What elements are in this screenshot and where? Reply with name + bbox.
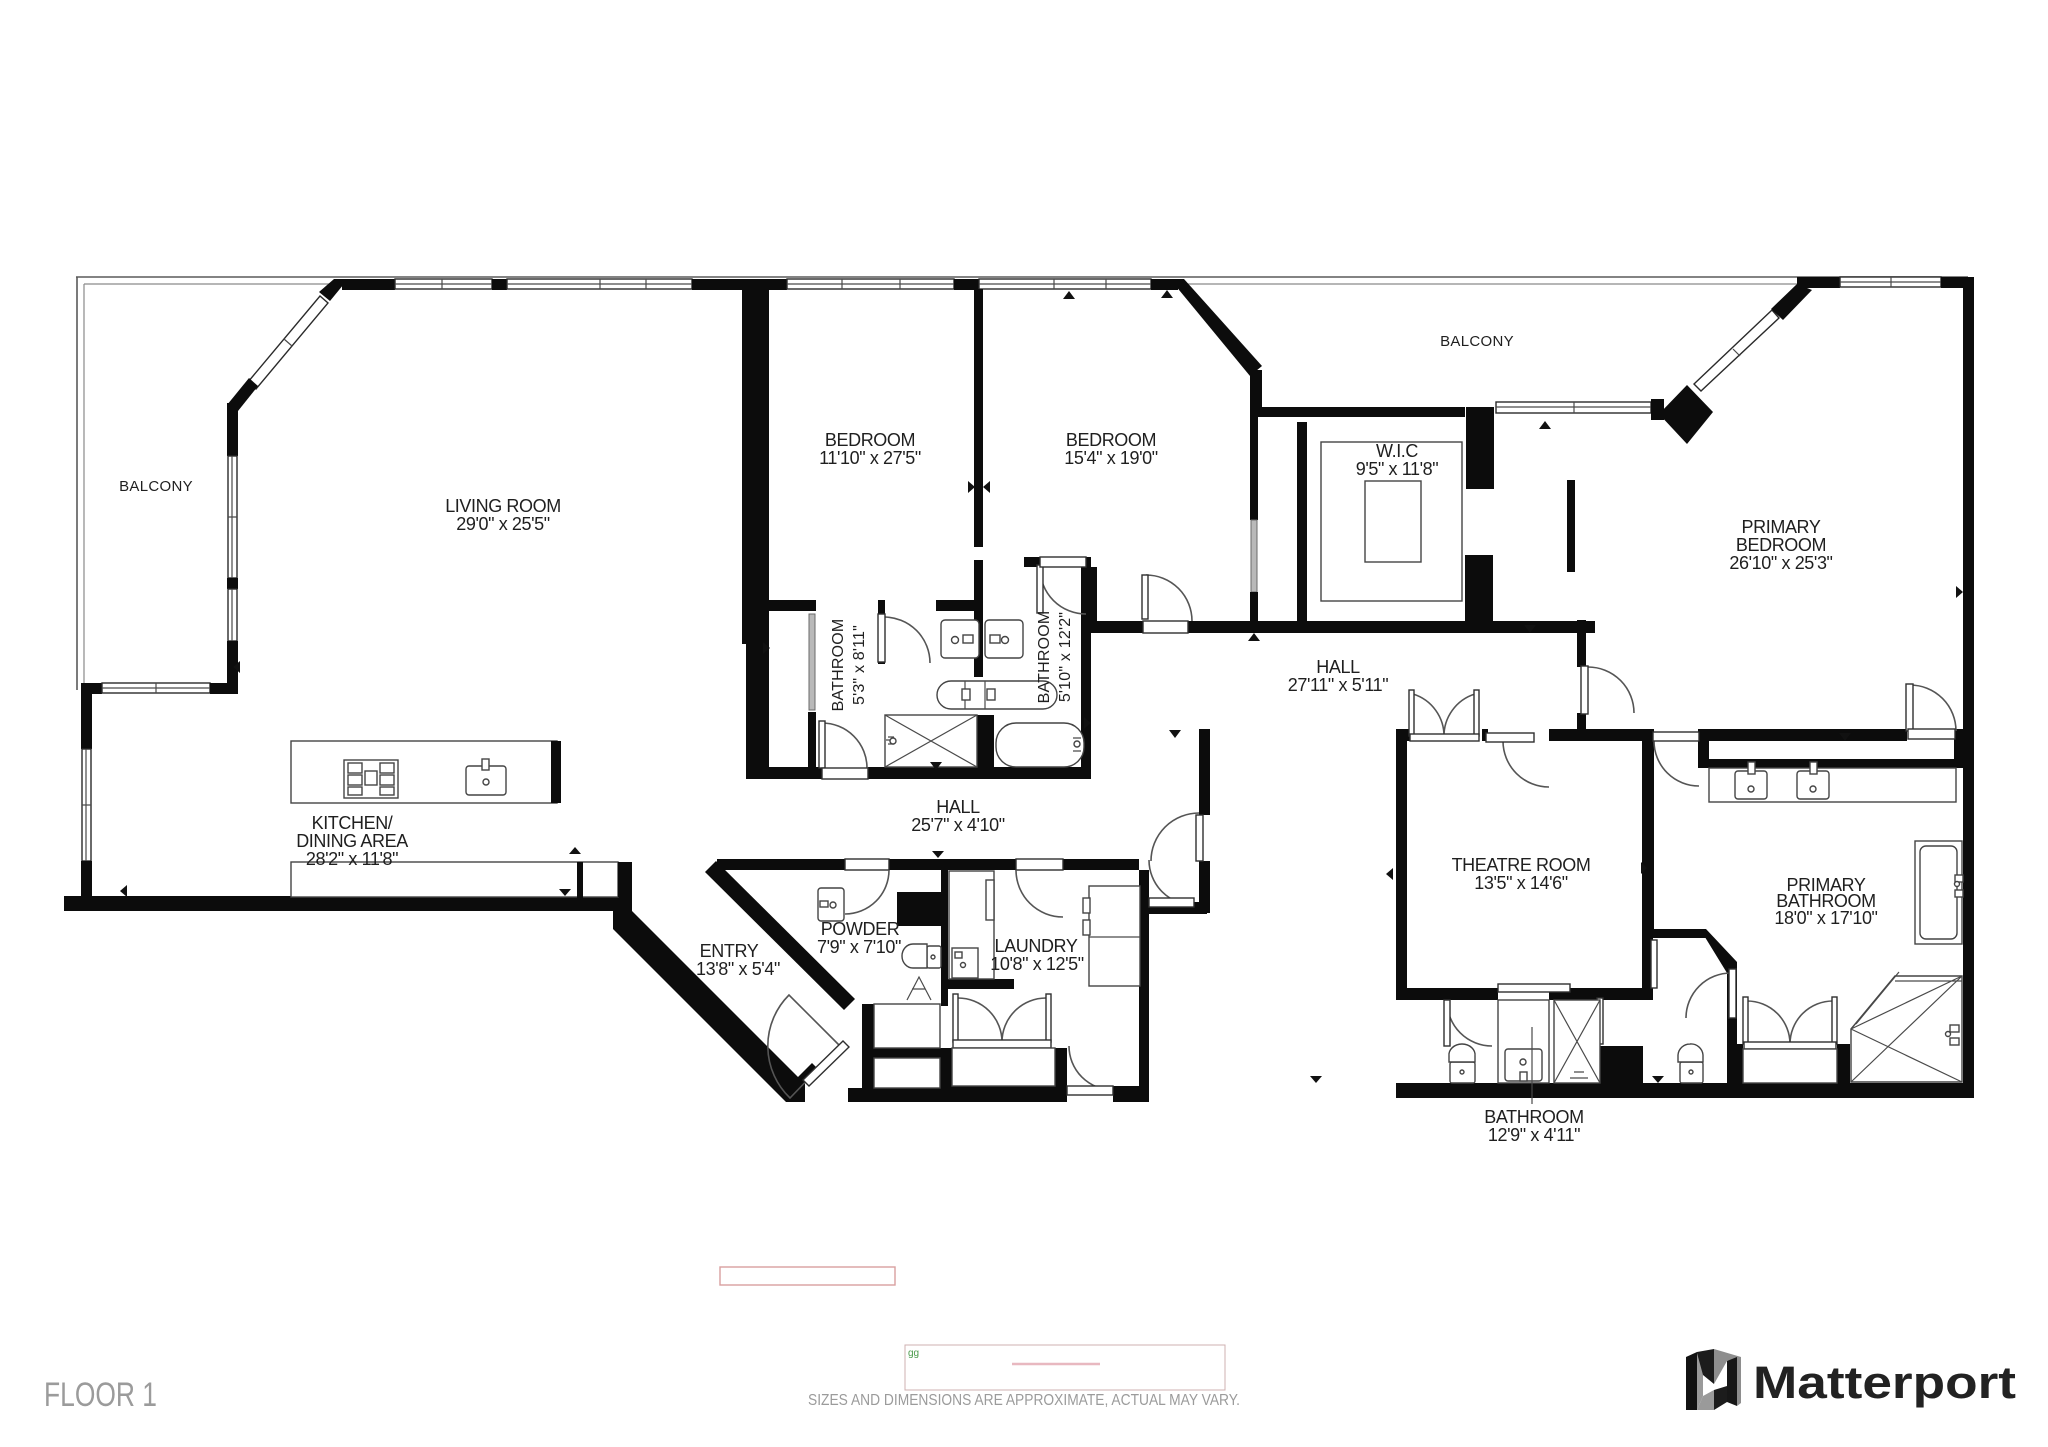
svg-text:26'10" x 25'3": 26'10" x 25'3" [1729,553,1832,573]
svg-text:KITCHEN/: KITCHEN/ [312,813,393,833]
svg-text:FLOOR 1: FLOOR 1 [44,1376,157,1414]
svg-text:18'0" x 17'10": 18'0" x 17'10" [1774,908,1877,928]
svg-text:28'2" x 11'8": 28'2" x 11'8" [306,849,398,869]
svg-text:7'9" x 7'10": 7'9" x 7'10" [817,937,901,957]
svg-text:BALCONY: BALCONY [1440,333,1514,350]
svg-text:DINING AREA: DINING AREA [296,831,408,851]
svg-text:BALCONY: BALCONY [119,478,193,495]
svg-text:15'4" x 19'0": 15'4" x 19'0" [1064,448,1158,468]
svg-text:POWDER: POWDER [821,919,900,939]
svg-text:BATHROOM: BATHROOM [1484,1107,1583,1127]
svg-text:11'10" x 27'5": 11'10" x 27'5" [819,448,921,468]
svg-text:LAUNDRY: LAUNDRY [995,936,1078,956]
svg-text:SIZES AND DIMENSIONS ARE APPRO: SIZES AND DIMENSIONS ARE APPROXIMATE, AC… [808,1392,1240,1409]
svg-text:13'8" x 5'4": 13'8" x 5'4" [696,959,780,979]
svg-text:9'5" x 11'8": 9'5" x 11'8" [1356,459,1439,479]
svg-text:BEDROOM: BEDROOM [1736,535,1826,555]
svg-text:5'3" x 8'11": 5'3" x 8'11" [851,625,868,705]
svg-text:27'11" x 5'11": 27'11" x 5'11" [1288,675,1388,695]
svg-text:HALL: HALL [1316,657,1360,677]
svg-text:LIVING ROOM: LIVING ROOM [445,496,561,516]
svg-text:5'10" x 12'2": 5'10" x 12'2" [1057,612,1074,702]
svg-text:BATHROOM: BATHROOM [1036,611,1053,704]
svg-text:Matterport: Matterport [1753,1357,2016,1408]
svg-text:HALL: HALL [936,797,980,817]
svg-text:10'8" x 12'5": 10'8" x 12'5" [990,954,1084,974]
svg-text:W.I.C: W.I.C [1376,441,1418,461]
svg-text:THEATRE ROOM: THEATRE ROOM [1452,855,1591,875]
svg-text:BEDROOM: BEDROOM [1066,430,1156,450]
svg-text:ENTRY: ENTRY [700,941,759,961]
svg-text:29'0" x 25'5": 29'0" x 25'5" [456,514,550,534]
svg-text:PRIMARY: PRIMARY [1742,517,1821,537]
svg-text:12'9" x 4'11": 12'9" x 4'11" [1488,1125,1580,1145]
svg-text:BEDROOM: BEDROOM [825,430,915,450]
svg-text:13'5" x 14'6": 13'5" x 14'6" [1474,873,1568,893]
svg-text:gg: gg [908,1348,919,1359]
svg-text:BATHROOM: BATHROOM [830,619,847,712]
svg-text:25'7" x 4'10": 25'7" x 4'10" [911,815,1005,835]
